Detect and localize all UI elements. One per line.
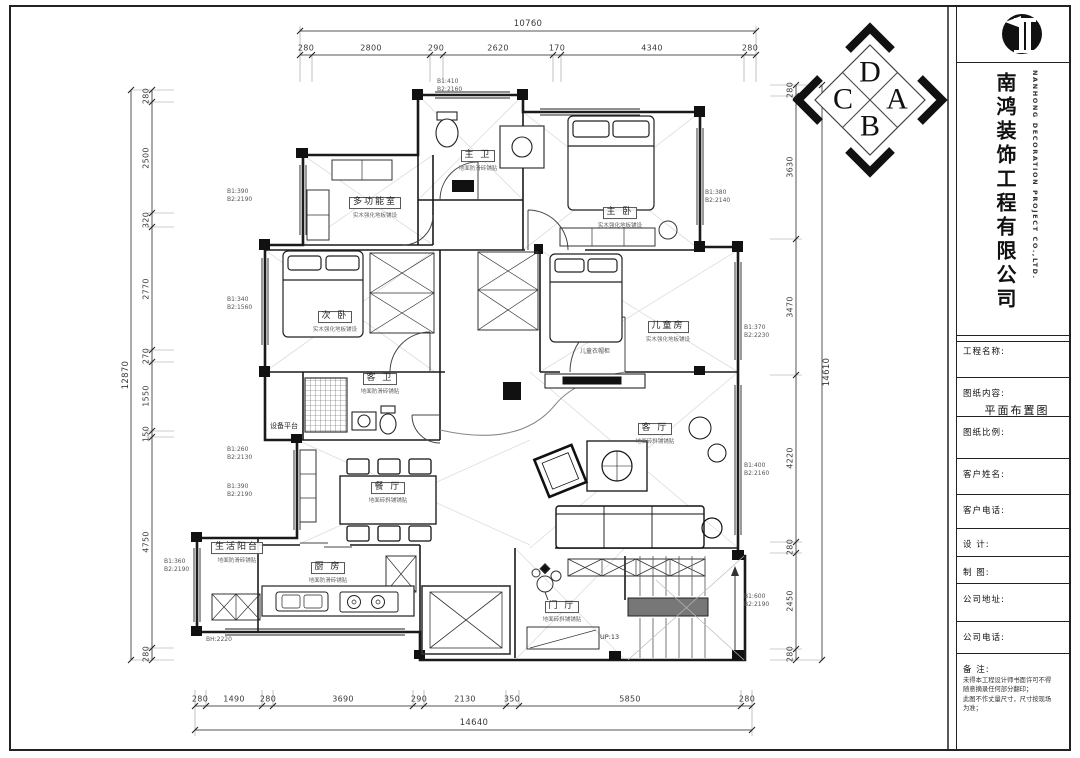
columns [191,89,744,660]
compass-letter-b: B [860,110,880,144]
dim-right-seg: 280 [786,539,795,555]
floorplan-linework [0,0,1080,758]
window-tag: B1:390B2:2190 [227,188,252,204]
dim-bottom-seg: 3690 [332,695,354,704]
room-label-master-bath: 主 卫地面防滑砖铺贴 [457,150,499,172]
remark-text: 随意摘录任何部分翻印； [963,685,1071,694]
dim-top-total: 10760 [514,19,543,29]
field-drawing-content: 图纸内容:平面布置图 [957,377,1071,416]
company-name-en: NANHONG DECORATION PROJECT CO.,LTD. [1031,70,1039,332]
dim-top-seg: 280 [298,44,314,53]
window-tag: B1:360B2:2190 [164,558,189,574]
room-label-guest-bath: 客 卫地面防滑砖铺贴 [359,373,401,395]
dim-left-seg: 150 [142,426,151,442]
compass-letter-a: A [886,83,908,117]
dim-left-total: 12870 [121,361,131,390]
window-tag: B1:370B2:2230 [744,324,769,340]
beam-height-tag: BH:2220 [206,636,232,644]
dim-top-seg: 170 [549,44,565,53]
dim-left-seg: 280 [142,646,151,662]
compass-letter-c: C [833,83,853,117]
dim-bottom-seg: 1490 [223,695,245,704]
dim-bottom-seg: 5850 [619,695,641,704]
dim-left-seg: 4750 [142,531,151,553]
room-label-kids-room: 儿童房实木强化地板铺设 [644,321,692,343]
room-label-dining: 餐 厅地面砖斜铺铺贴 [367,482,409,504]
dim-right-total: 14610 [822,358,832,387]
dim-right-seg: 4220 [786,447,795,469]
dim-right-seg: 3630 [786,156,795,178]
dimension-lines [128,26,825,736]
dim-left-seg: 270 [142,348,151,364]
dim-top-seg: 4340 [641,44,663,53]
dim-left-seg: 1550 [142,385,151,407]
windows [194,92,741,635]
field-drawing-scale: 图纸比例: [957,416,1071,458]
dim-bottom-seg: 280 [739,695,755,704]
foyer-decor [532,564,561,600]
company-logo [957,6,1071,63]
dim-bottom-seg: 280 [260,695,276,704]
room-label-balcony: 生活阳台地面防滑砖铺贴 [211,542,263,564]
drawing-sheet: 10760 280 2800 290 2620 170 4340 280 146… [0,0,1080,758]
dim-top-seg: 2800 [360,44,382,53]
dim-left-seg: 2500 [142,147,151,169]
field-client-phone: 客户电话: [957,494,1071,528]
field-remarks: 备 注: 未得本工程设计师书面许可不得 随意摘录任何部分翻印； 此图不作丈量尺寸… [957,653,1071,750]
dim-right-seg: 280 [786,82,795,98]
dim-top-seg: 290 [428,44,444,53]
room-label-foyer: 门 厅地面砖斜铺铺贴 [541,601,583,623]
room-label-equipment-platform: 设备平台 [267,423,301,431]
remark-text: 未得本工程设计师书面许可不得 [963,676,1071,685]
room-label-living: 客 厅地面砖斜铺铺贴 [634,423,676,445]
dim-top-seg: 2620 [487,44,509,53]
dim-bottom-seg: 280 [192,695,208,704]
window-tag: B1:400B2:2160 [744,462,769,478]
window-tag: B1:600B2:2190 [744,593,769,609]
window-tag: B1:410B2:2160 [437,78,462,94]
room-label-second-bedroom: 次 卧实木强化地板铺设 [311,311,359,333]
room-label-master-bedroom: 主 卧实木强化地板铺设 [596,207,644,229]
company-name-block: 南鸿装饰工程有限公司 NANHONG DECORATION PROJECT CO… [957,62,1071,342]
column-logo-icon [957,6,1071,61]
dim-left-seg: 280 [142,88,151,104]
dim-right-seg: 2450 [786,590,795,612]
window-tag: B1:260B2:2130 [227,446,252,462]
dim-bottom-seg: 2130 [454,695,476,704]
compass-letter-d: D [859,56,881,90]
window-tag: B1:390B2:2190 [227,483,252,499]
dim-right-seg: 280 [786,646,795,662]
dim-left-seg: 2770 [142,278,151,300]
room-label-kitchen: 厨 房地面防滑砖铺贴 [307,562,349,584]
window-tag: B1:340B2:1560 [227,296,252,312]
sheet-border [10,6,1070,750]
field-drafter: 制 图: [957,556,1071,583]
equipment-shaft [305,378,347,432]
field-company-address: 公司地址: [957,583,1071,621]
stairs-up-label: UP:13 [600,633,619,641]
dim-bottom-total: 14640 [460,718,489,728]
dim-bottom-seg: 290 [411,695,427,704]
dim-left-seg: 320 [142,212,151,228]
remark-text: 此图不作丈量尺寸，尺寸按现场 [963,695,1071,704]
compass [798,28,942,172]
kitchen-fixtures [262,586,414,616]
field-designer: 设 计: [957,528,1071,556]
room-label-multi-function: 多功能室实木强化地板铺设 [349,197,401,219]
elevator [422,586,510,654]
company-name-cn: 南鸿装饰工程有限公司 [991,72,1020,330]
title-block: 南鸿装饰工程有限公司 NANHONG DECORATION PROJECT CO… [956,6,1071,750]
field-company-phone: 公司电话: [957,621,1071,653]
remark-text: 为准； [963,704,1071,713]
dim-bottom-seg: 350 [504,695,520,704]
field-client-name: 客户姓名: [957,458,1071,494]
exterior-walls [197,95,745,660]
dim-top-seg: 280 [742,44,758,53]
window-tag: B1:380B2:2140 [705,189,730,205]
dim-right-seg: 3470 [786,296,795,318]
kids-closet-label: 儿童衣帽柜 [580,346,610,355]
field-project-name: 工程名称: [957,335,1071,377]
